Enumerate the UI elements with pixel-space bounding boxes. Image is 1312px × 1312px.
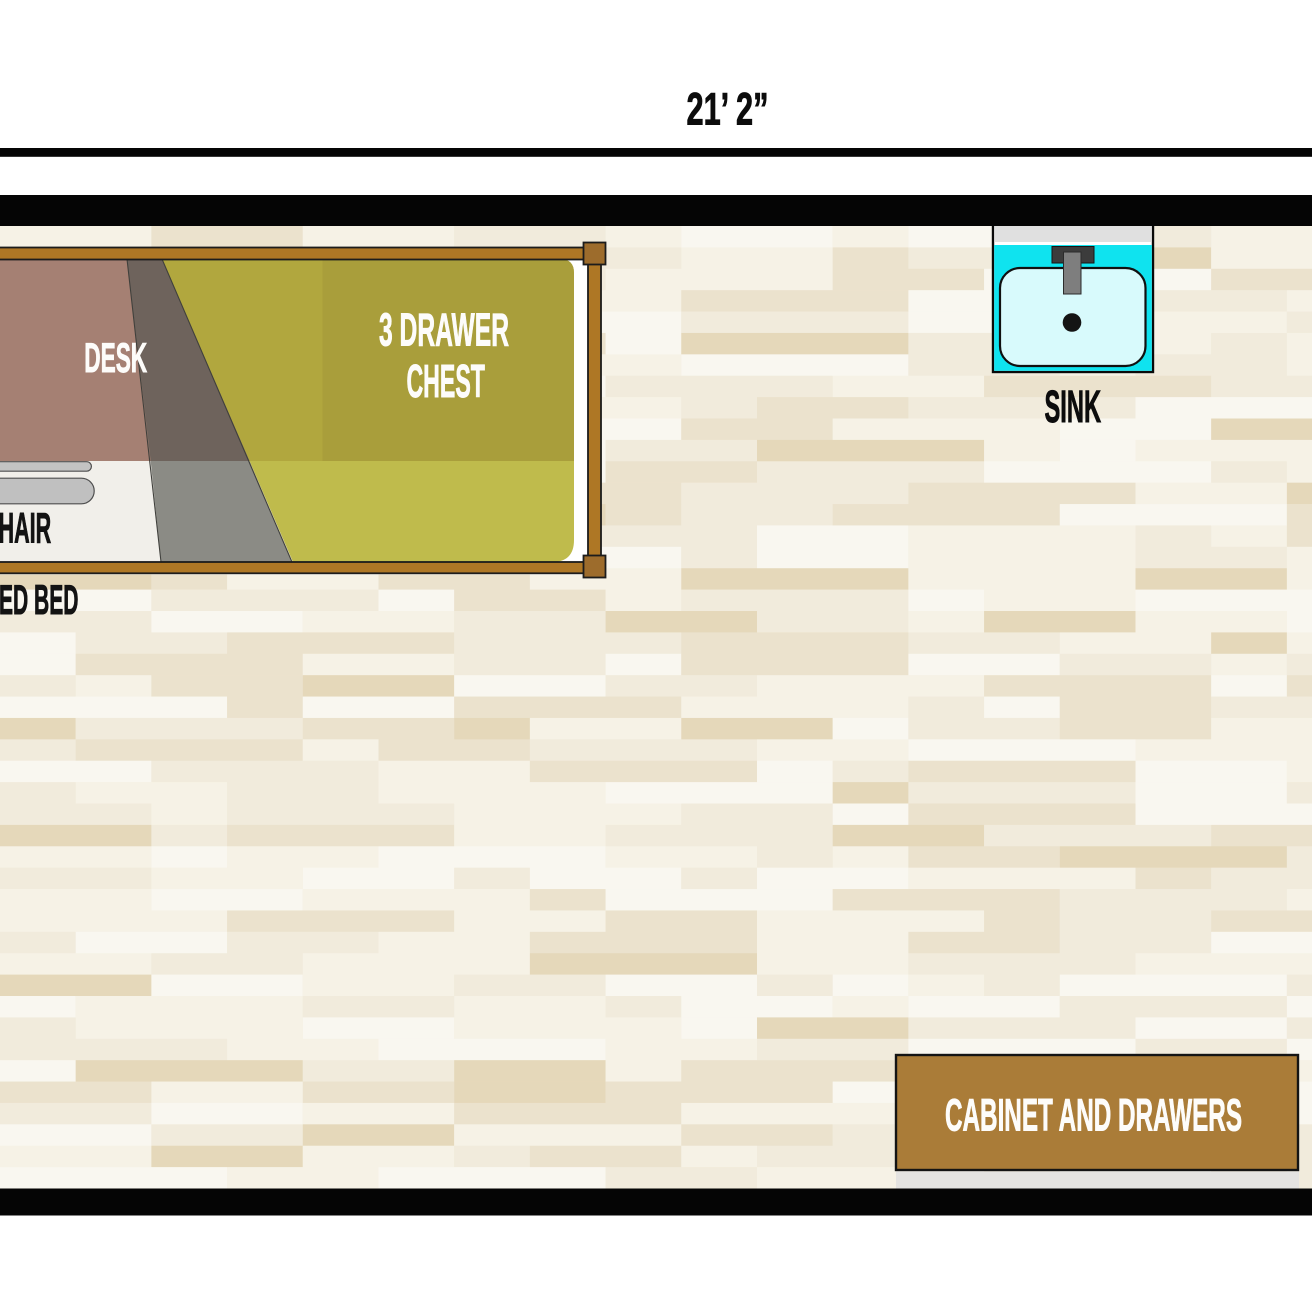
svg-text:3 DRAWER: 3 DRAWER [379,304,509,356]
svg-text:CABINET AND DRAWERS: CABINET AND DRAWERS [945,1089,1242,1140]
svg-text:21’ 2”: 21’ 2” [687,83,769,134]
svg-text:LOFTED BED: LOFTED BED [0,577,79,623]
svg-text:SINK: SINK [1045,381,1102,432]
svg-text:DESK: DESK [84,334,147,381]
svg-text:CHEST: CHEST [406,355,485,407]
svg-text:CHAIR: CHAIR [0,505,51,552]
